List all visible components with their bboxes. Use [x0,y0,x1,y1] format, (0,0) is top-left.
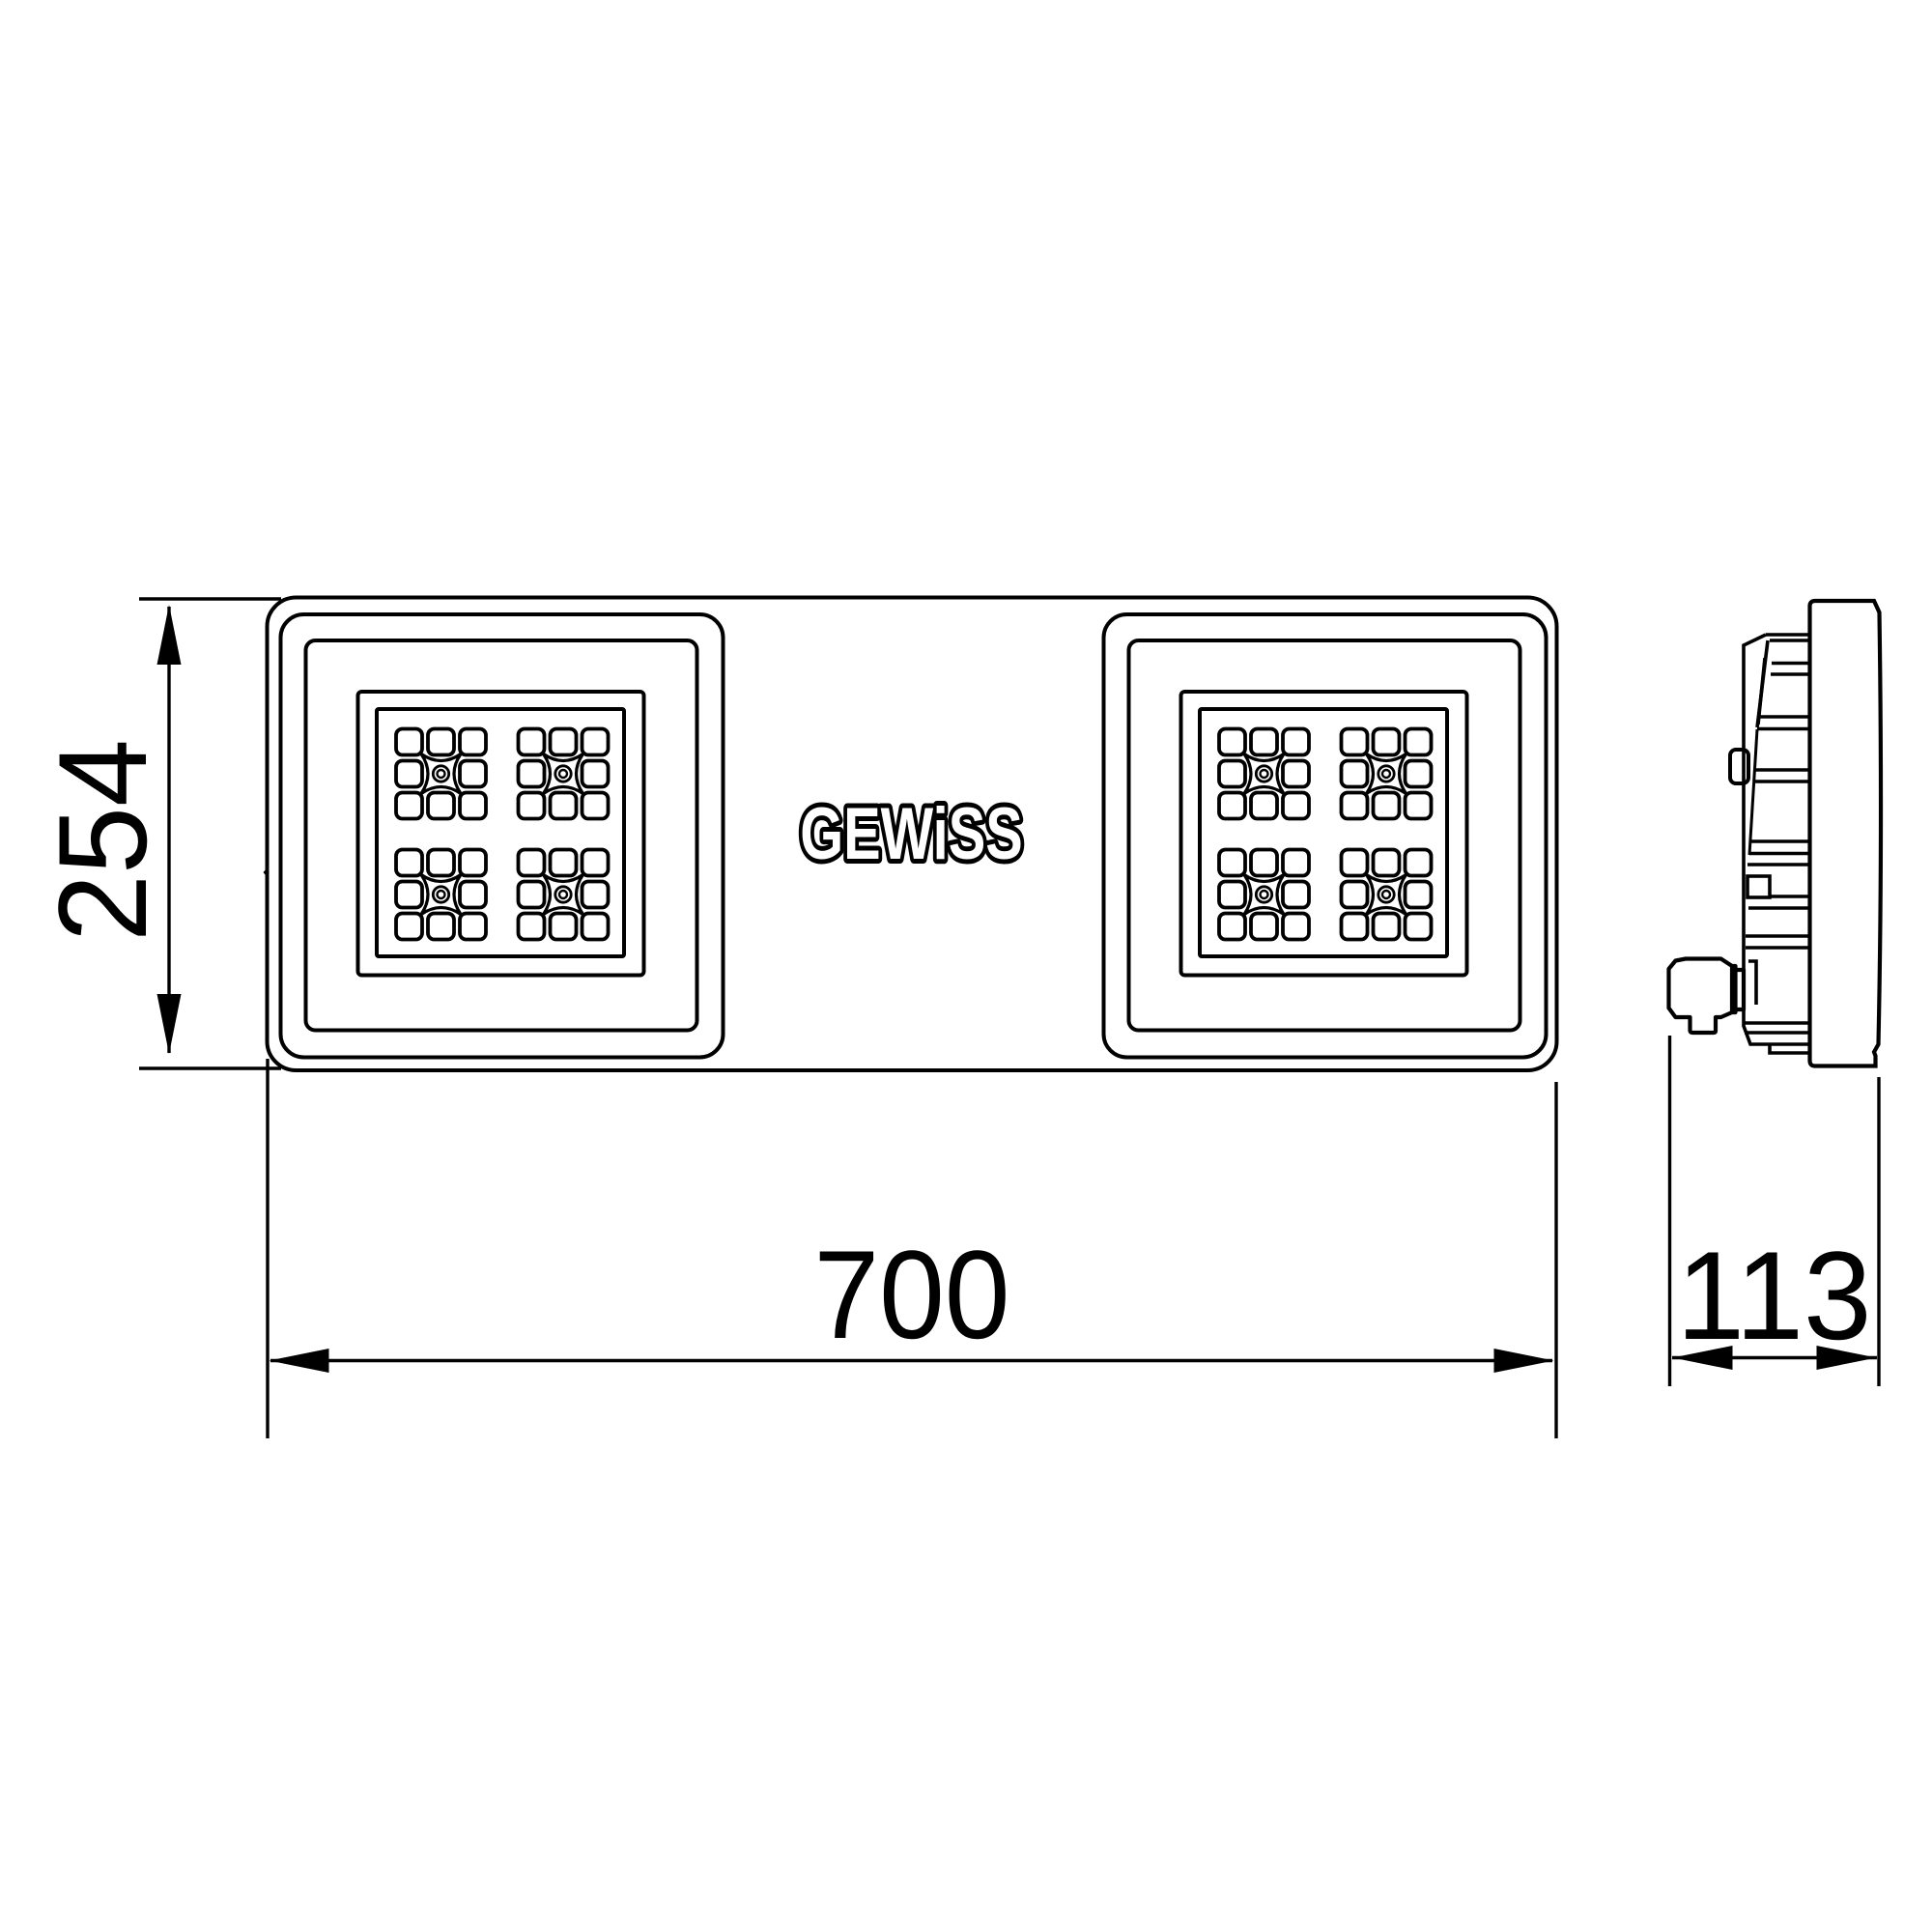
svg-text:254: 254 [32,739,173,942]
svg-text:700: 700 [814,1224,1010,1365]
svg-text:113: 113 [1677,1225,1872,1366]
svg-text:GEWiSS: GEWiSS [800,793,1023,874]
